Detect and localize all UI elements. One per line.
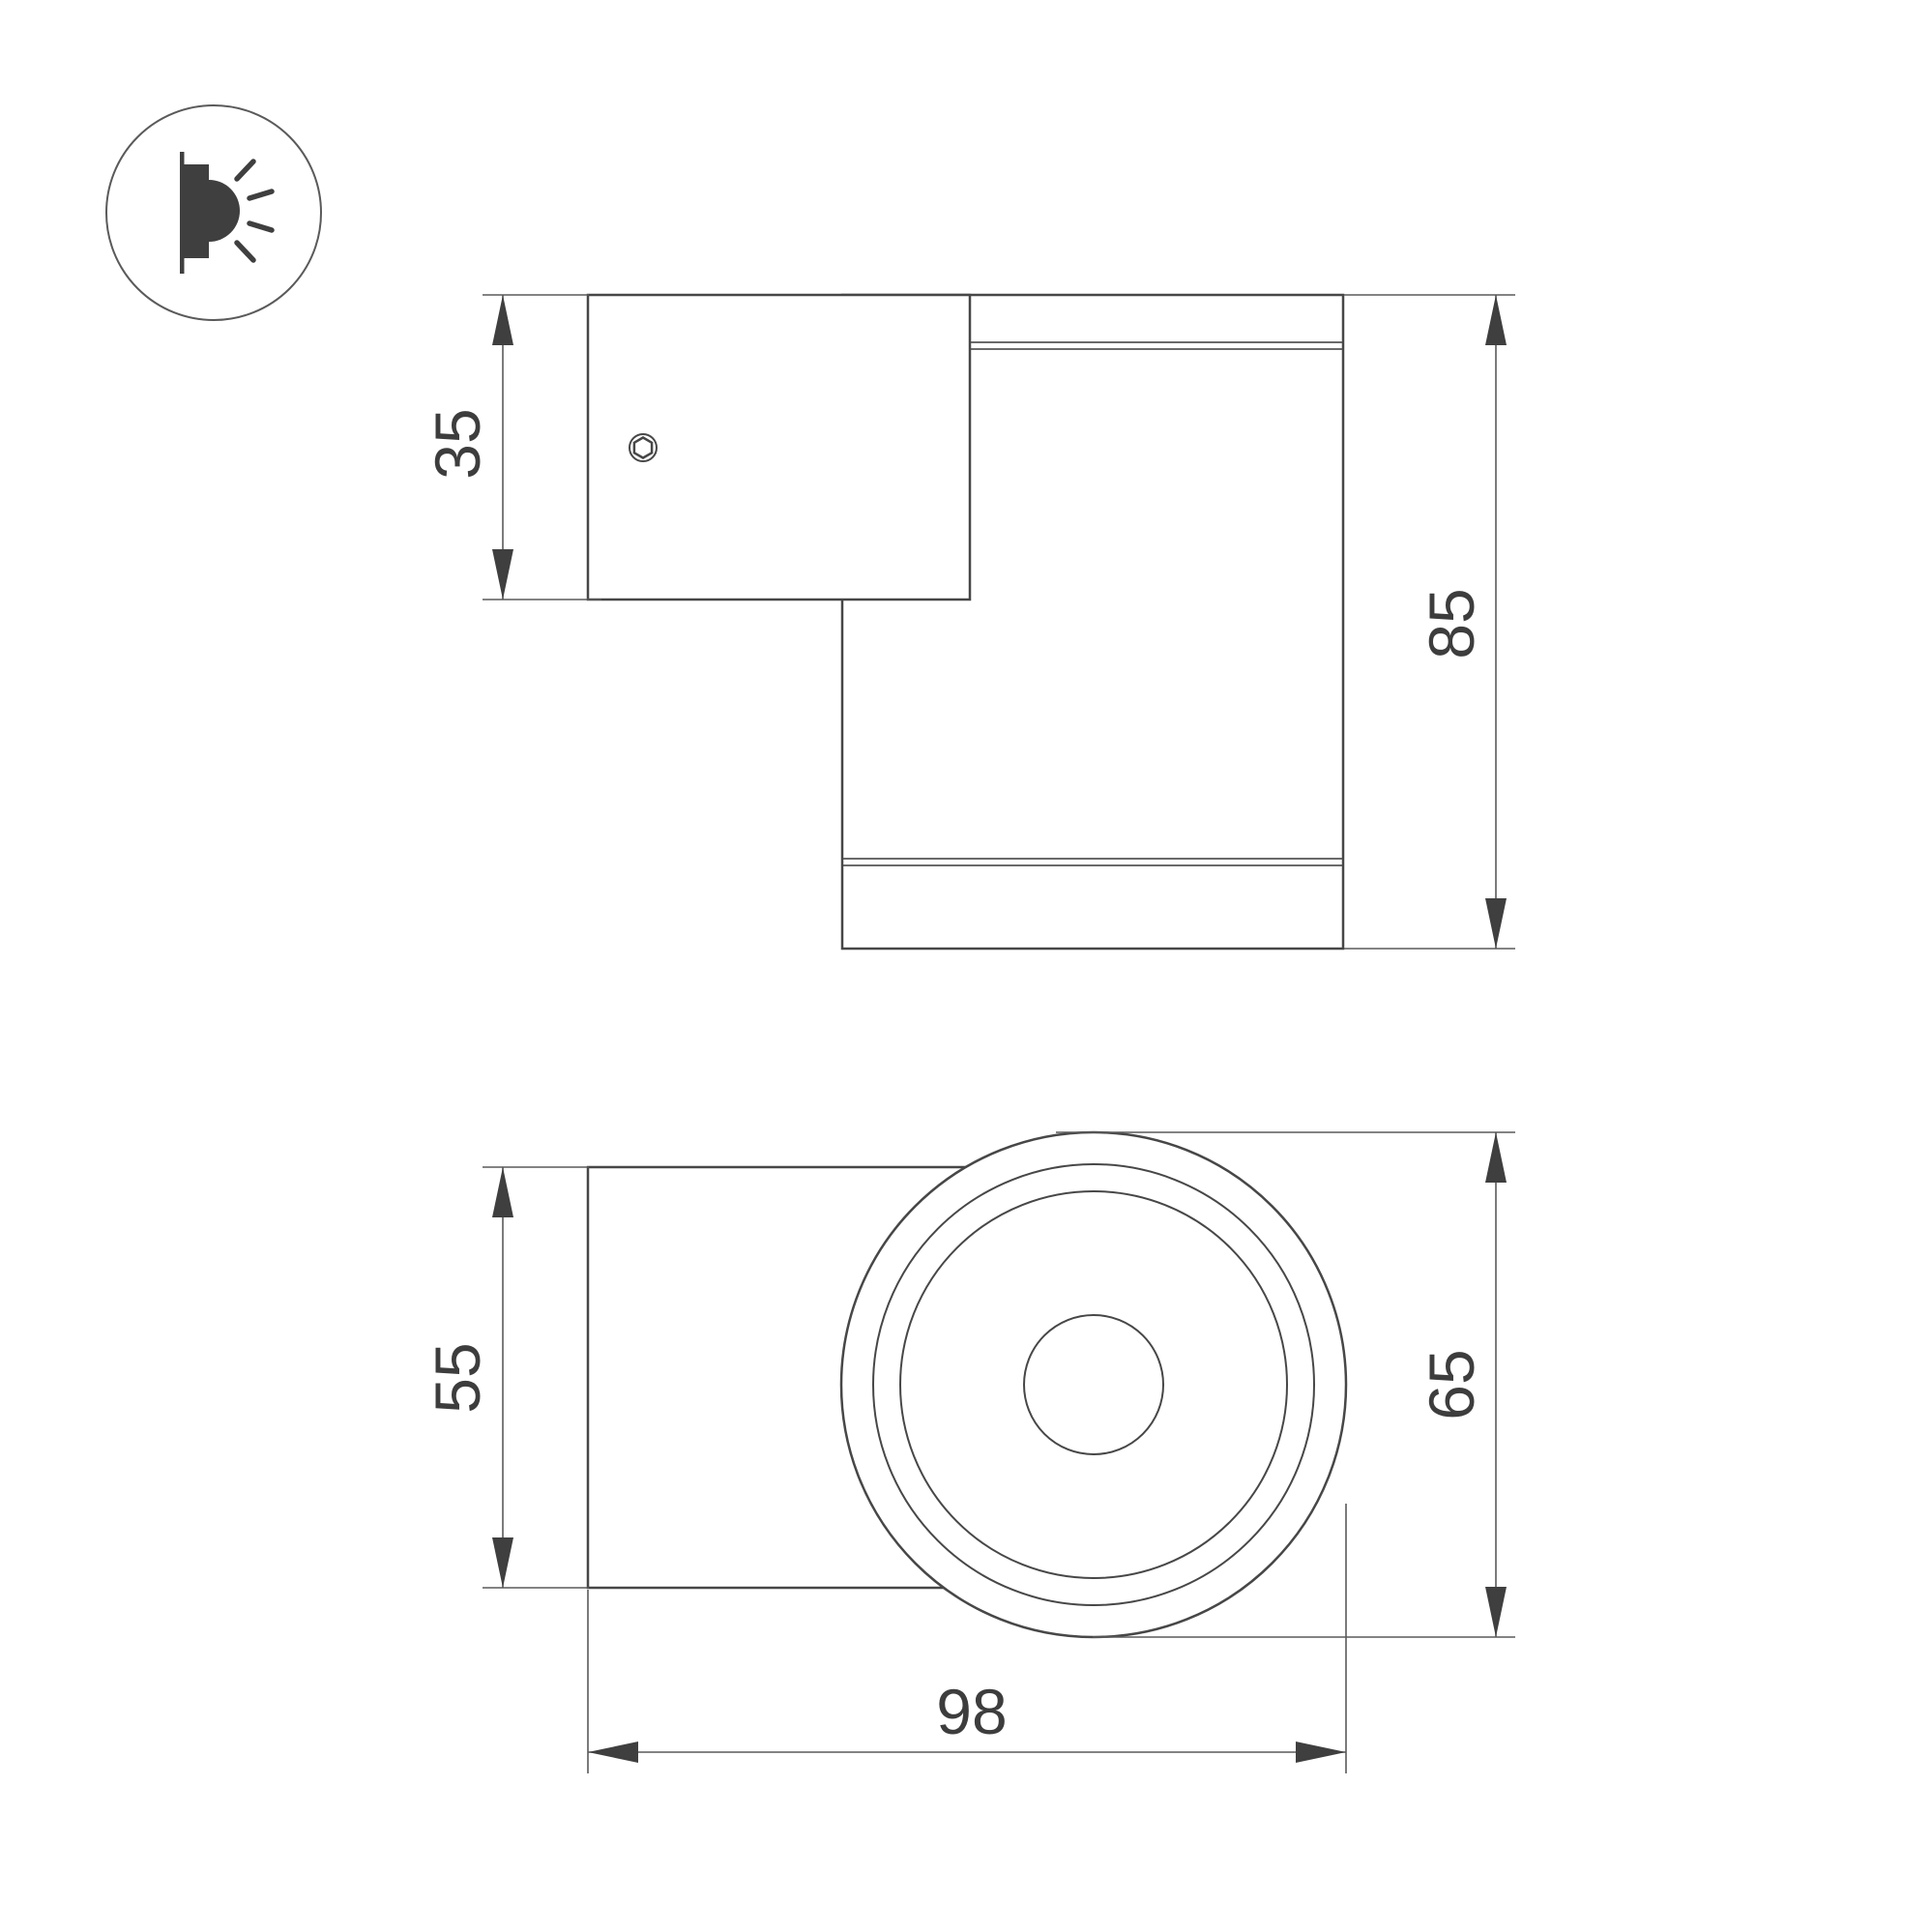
drawing-canvas: 35 85 (0, 0, 1932, 1932)
icon-lamp-body (184, 164, 209, 258)
arrowhead-up (492, 1167, 513, 1217)
dimension-label-85: 85 (1416, 588, 1487, 659)
arrowhead-up (1485, 295, 1507, 345)
dimension-label-55: 55 (422, 1342, 493, 1413)
arrowhead-down (1485, 1587, 1507, 1637)
dimension-mount-width: 55 (422, 1167, 589, 1588)
side-view: 35 85 (422, 295, 1515, 949)
dimension-plate-height: 35 (422, 295, 601, 600)
dimension-label-65: 65 (1416, 1349, 1487, 1420)
arrowhead-down (1485, 898, 1507, 949)
arrowhead-right (1296, 1742, 1346, 1763)
arrowhead-up (1485, 1132, 1507, 1183)
arrowhead-down (492, 549, 513, 600)
arrowhead-left (588, 1742, 638, 1763)
dimension-total-height: 85 (1344, 295, 1515, 949)
wall-light-emission-icon (106, 105, 321, 320)
led-center-circle (1024, 1315, 1163, 1454)
mounting-plate-outline (588, 295, 970, 600)
dimension-label-98: 98 (936, 1676, 1007, 1747)
icon-light-rays (237, 161, 272, 260)
arrowhead-down (492, 1537, 513, 1588)
dimension-label-35: 35 (422, 408, 493, 479)
dimension-drawing: 35 85 (0, 0, 1932, 1932)
arrowhead-up (492, 295, 513, 345)
icon-light-dome (209, 180, 240, 242)
front-view: 55 65 98 (422, 1132, 1515, 1773)
icon-wall-line (180, 152, 185, 274)
